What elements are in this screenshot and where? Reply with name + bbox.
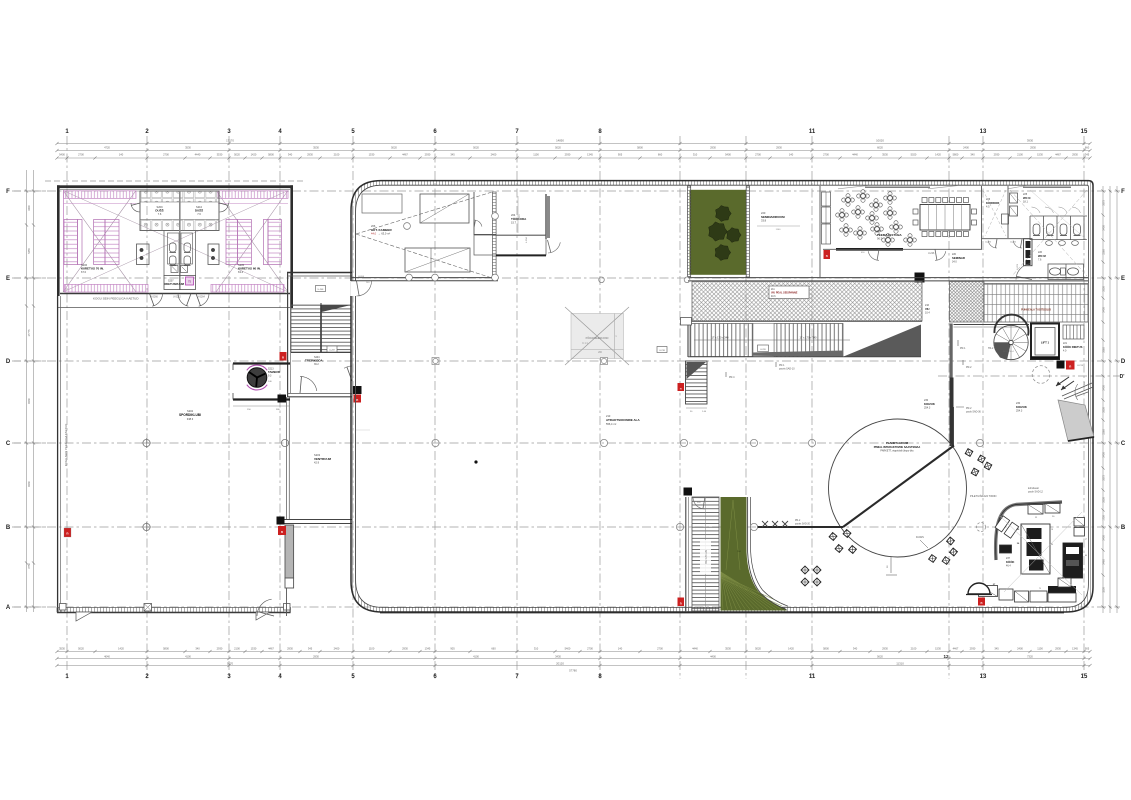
svg-text:5355: 5355 <box>28 248 31 254</box>
svg-text:SEMINARIRUUM: SEMINARIRUUM <box>761 215 785 219</box>
svg-text:2930: 2930 <box>565 153 571 157</box>
svg-text:kohvikuait: kohvikuait <box>1028 487 1039 490</box>
svg-text:n: n <box>281 530 283 534</box>
svg-text:2930: 2930 <box>1055 647 1061 651</box>
svg-text:4440: 4440 <box>692 647 698 651</box>
svg-text:2930: 2930 <box>1072 153 1078 157</box>
svg-text:310: 310 <box>693 153 698 157</box>
svg-text:2000: 2000 <box>1103 286 1106 292</box>
svg-text:1420: 1420 <box>788 647 794 651</box>
svg-text:A: A <box>6 605 11 611</box>
svg-text:4440: 4440 <box>852 153 858 157</box>
svg-text:1530: 1530 <box>369 153 375 157</box>
svg-text:5020: 5020 <box>473 146 479 150</box>
svg-text:PILETIVÄRAVA T300N: PILETIVÄRAVA T300N <box>970 494 997 498</box>
svg-text:SPORDIKLUBI: SPORDIKLUBI <box>179 413 201 417</box>
svg-text:PR-2: PR-2 <box>966 407 972 410</box>
svg-text:PIMIAL INTERAKTIIVNE SAASTEMAA: PIMIAL INTERAKTIIVNE SAASTEMAA <box>874 445 921 449</box>
svg-text:PR-1: PR-1 <box>960 347 966 350</box>
svg-text:15: 15 <box>1081 129 1088 135</box>
svg-text:DUŠŠ: DUŠŠ <box>155 207 163 212</box>
svg-text:3530: 3530 <box>217 153 223 157</box>
svg-text:PARKETT, etapiviisil ükspo-üks: PARKETT, etapiviisil ükspo-üks <box>880 450 914 453</box>
svg-text:34.0: 34.0 <box>952 260 957 263</box>
svg-text:U-226: U-226 <box>928 253 935 255</box>
svg-text:556,4 m²: 556,4 m² <box>606 422 616 426</box>
svg-text:TAMBUR: TAMBUR <box>268 370 280 374</box>
svg-text:20120: 20120 <box>556 661 564 665</box>
svg-text:4467: 4467 <box>953 647 959 651</box>
svg-text:C 1:1: C 1:1 <box>582 343 588 345</box>
svg-text:3400: 3400 <box>28 205 31 211</box>
svg-text:8230: 8230 <box>28 481 31 487</box>
svg-text:U-S212: U-S212 <box>173 296 182 298</box>
svg-text:338.3: 338.3 <box>187 417 194 421</box>
svg-text:n: n <box>680 386 682 390</box>
svg-text:9170: 9170 <box>227 661 234 665</box>
svg-text:7.6: 7.6 <box>158 212 162 216</box>
svg-text:TREPIKODA: TREPIKODA <box>305 359 324 363</box>
svg-text:HKT. KAMBER: HKT. KAMBER <box>371 228 392 232</box>
svg-text:2400: 2400 <box>963 146 969 150</box>
svg-text:340: 340 <box>288 153 293 157</box>
svg-text:1700: 1700 <box>1103 515 1106 521</box>
svg-text:n: n <box>356 398 358 402</box>
svg-text:L-204: L-204 <box>526 237 528 243</box>
svg-text:2930: 2930 <box>1030 146 1036 150</box>
svg-text:6020: 6020 <box>877 146 883 150</box>
svg-text:36.2: 36.2 <box>314 363 319 366</box>
svg-text:1100: 1100 <box>369 647 375 651</box>
svg-text:345: 345 <box>308 647 313 651</box>
svg-text:2100: 2100 <box>334 153 340 157</box>
svg-text:KIIRETUS 60 IN.: KIIRETUS 60 IN. <box>238 267 261 271</box>
svg-text:2100: 2100 <box>911 647 917 651</box>
svg-text:3530: 3530 <box>185 146 191 150</box>
svg-text:140: 140 <box>618 647 623 651</box>
svg-text:905: 905 <box>450 647 455 651</box>
svg-text:KOGU SEIN PEEGLIGA KAETUD: KOGU SEIN PEEGLIGA KAETUD <box>93 297 139 301</box>
svg-text:2930: 2930 <box>287 647 293 651</box>
svg-text:2000: 2000 <box>1103 407 1106 413</box>
svg-text:905: 905 <box>618 153 623 157</box>
svg-text:D: D <box>6 359 11 365</box>
svg-text:340: 340 <box>853 647 858 651</box>
svg-text:n: n <box>680 601 682 605</box>
svg-text:57780: 57780 <box>569 669 577 673</box>
svg-text:n: n <box>282 356 284 360</box>
svg-text:340: 340 <box>970 153 975 157</box>
svg-text:2930: 2930 <box>710 146 716 150</box>
svg-text:SU-1,251.4: SU-1,251.4 <box>1003 351 1014 353</box>
svg-text:→ 63,0 m²: → 63,0 m² <box>378 232 390 236</box>
svg-text:13: 13 <box>980 129 987 135</box>
svg-text:TR-2: TR-2 <box>988 347 994 350</box>
svg-text:PR-4: PR-4 <box>729 376 735 379</box>
svg-text:5020: 5020 <box>78 647 84 651</box>
svg-text:2060: 2060 <box>1103 347 1106 353</box>
svg-text:63.4: 63.4 <box>238 270 244 274</box>
svg-text:KORIDOR: KORIDOR <box>986 201 999 205</box>
svg-text:2100: 2100 <box>1017 153 1023 157</box>
svg-text:1530: 1530 <box>935 647 941 651</box>
svg-text:SEMINAR: SEMINAR <box>952 256 965 260</box>
svg-text:3430: 3430 <box>555 655 561 659</box>
svg-text:310: 310 <box>534 647 539 651</box>
svg-text:4440: 4440 <box>195 153 201 157</box>
svg-text:2700: 2700 <box>657 647 663 651</box>
svg-text:5800: 5800 <box>637 146 643 150</box>
svg-text:2930: 2930 <box>217 647 223 651</box>
svg-text:E: E <box>6 276 10 282</box>
svg-text:2000: 2000 <box>1103 497 1106 503</box>
svg-text:140: 140 <box>789 153 794 157</box>
svg-text:WC M: WC M <box>1038 254 1046 258</box>
svg-text:15: 15 <box>1081 674 1088 680</box>
svg-text:U-218: U-218 <box>659 350 666 352</box>
svg-text:VIU PEAL SEISPANNE: VIU PEAL SEISPANNE <box>771 292 798 295</box>
svg-text:2930: 2930 <box>402 647 408 651</box>
svg-text:poole SAD-12: poole SAD-12 <box>1028 491 1044 494</box>
svg-text:33.8: 33.8 <box>761 219 767 223</box>
svg-text:1100: 1100 <box>533 153 539 157</box>
svg-text:TEEMAJASTUBA: TEEMAJASTUBA <box>877 233 903 237</box>
svg-text:U-209: U-209 <box>329 349 336 351</box>
svg-text:2930: 2930 <box>307 153 313 157</box>
svg-text:2070: 2070 <box>1103 200 1106 206</box>
svg-text:221: 221 <box>1063 342 1068 345</box>
svg-text:2400: 2400 <box>334 647 340 651</box>
svg-text:254.3: 254.3 <box>1016 409 1023 412</box>
svg-text:PLANETAARIUM: PLANETAARIUM <box>886 441 909 445</box>
svg-text:2930: 2930 <box>313 655 319 659</box>
svg-text:140: 140 <box>119 153 124 157</box>
svg-text:2700: 2700 <box>587 647 593 651</box>
svg-text:5020: 5020 <box>755 647 761 651</box>
svg-text:pooris SAD-10: pooris SAD-10 <box>779 368 795 371</box>
svg-text:4.5: 4.5 <box>986 205 990 208</box>
svg-text:PR-1: PR-1 <box>779 364 785 367</box>
svg-text:18.1: 18.1 <box>1023 200 1028 203</box>
svg-text:4040: 4040 <box>104 655 110 659</box>
svg-text:660: 660 <box>491 647 496 651</box>
svg-text:4100: 4100 <box>473 655 479 659</box>
svg-text:LIFT 1: LIFT 1 <box>1041 341 1050 345</box>
svg-text:4467: 4467 <box>1055 153 1061 157</box>
svg-text:2400: 2400 <box>491 153 497 157</box>
svg-text:11310: 11310 <box>896 661 904 665</box>
svg-text:1420: 1420 <box>935 153 941 157</box>
svg-text:5020: 5020 <box>234 153 240 157</box>
svg-text:U-220: U-220 <box>760 349 767 351</box>
svg-text:1345: 1345 <box>425 647 431 651</box>
svg-text:3930: 3930 <box>1027 139 1034 143</box>
svg-text:3750: 3750 <box>28 563 31 569</box>
svg-text:1530: 1530 <box>1037 153 1043 157</box>
svg-text:40.6: 40.6 <box>771 296 776 298</box>
svg-text:10020: 10020 <box>876 139 884 143</box>
svg-text:1345: 1345 <box>587 153 593 157</box>
svg-text:DUŠŠ: DUŠŠ <box>195 207 203 212</box>
svg-text:D': D' <box>1120 374 1125 380</box>
svg-text:2930: 2930 <box>994 153 1000 157</box>
svg-text:2460: 2460 <box>1103 559 1106 565</box>
svg-text:n: n <box>826 254 828 258</box>
svg-text:5800: 5800 <box>163 647 169 651</box>
svg-text:1345: 1345 <box>1072 647 1078 651</box>
svg-text:216: 216 <box>925 304 930 307</box>
svg-text:PÕRVAMEESKOND: PÕRVAMEESKOND <box>586 337 609 340</box>
svg-text:3530: 3530 <box>59 647 65 651</box>
svg-text:KÖÖK RIIETUS: KÖÖK RIIETUS <box>1063 345 1083 349</box>
svg-text:34 x 170 x 29: 34 x 170 x 29 <box>706 549 708 564</box>
svg-text:42.9: 42.9 <box>314 460 320 464</box>
svg-text:4467: 4467 <box>402 153 408 157</box>
svg-text:n: n <box>66 532 68 536</box>
svg-text:2700: 2700 <box>755 153 761 157</box>
svg-text:U-S264: U-S264 <box>197 296 206 298</box>
svg-text:5020: 5020 <box>555 146 561 150</box>
svg-text:1420: 1420 <box>251 153 257 157</box>
svg-text:n: n <box>981 601 983 605</box>
svg-text:WC N: WC N <box>1023 196 1030 200</box>
svg-text:U-208: U-208 <box>318 289 325 291</box>
svg-text:5400: 5400 <box>59 153 65 157</box>
svg-text:pools SAD-36: pools SAD-36 <box>966 411 981 414</box>
svg-text:46.4: 46.4 <box>1006 564 1011 567</box>
svg-text:pooris SAD-20: pooris SAD-20 <box>795 523 811 526</box>
svg-text:KOHVIK: KOHVIK <box>1016 405 1027 409</box>
svg-text:11: 11 <box>809 674 816 680</box>
svg-text:17 x 170 x 340: 17 x 170 x 340 <box>711 336 729 340</box>
svg-text:5400: 5400 <box>565 647 571 651</box>
svg-text:5800: 5800 <box>268 153 274 157</box>
svg-text:C: C <box>1121 441 1126 447</box>
svg-text:3530: 3530 <box>725 647 731 651</box>
svg-text:PR-2: PR-2 <box>966 366 972 369</box>
svg-text:67.0: 67.0 <box>81 270 87 274</box>
svg-text:2070: 2070 <box>1103 475 1106 481</box>
svg-text:R-002S: R-002S <box>916 537 924 539</box>
svg-text:17 x 170 x 340: 17 x 170 x 340 <box>799 336 817 340</box>
svg-text:13: 13 <box>980 674 987 680</box>
svg-text:B: B <box>6 525 11 531</box>
svg-text:2700: 2700 <box>78 153 84 157</box>
svg-text:2400: 2400 <box>1103 307 1106 313</box>
svg-text:RIIETUSRUUM: RIIETUSRUUM <box>165 282 185 286</box>
svg-text:254.3: 254.3 <box>924 406 931 409</box>
svg-text:17775: 17775 <box>28 329 31 337</box>
svg-text:KIIRETUS 70 IN.: KIIRETUS 70 IN. <box>81 267 104 271</box>
svg-text:2400: 2400 <box>1017 647 1023 651</box>
svg-text:5020: 5020 <box>391 146 397 150</box>
svg-text:2930: 2930 <box>425 153 431 157</box>
svg-text:2930: 2930 <box>776 146 782 150</box>
svg-text:1140: 1140 <box>776 229 781 231</box>
svg-text:C: C <box>6 441 11 447</box>
svg-text:5400: 5400 <box>725 153 731 157</box>
svg-text:KOGU SEIN PEEGLIGA KAETUD: KOGU SEIN PEEGLIGA KAETUD <box>64 424 68 466</box>
svg-text:VIU: VIU <box>925 307 930 311</box>
svg-text:660: 660 <box>1085 146 1090 150</box>
svg-text:5800: 5800 <box>823 647 829 651</box>
svg-text:5020: 5020 <box>911 153 917 157</box>
svg-text:2400: 2400 <box>1103 535 1106 541</box>
svg-text:U-S266: U-S266 <box>150 296 159 298</box>
svg-text:F: F <box>1121 189 1125 195</box>
svg-text:2700: 2700 <box>163 153 169 157</box>
svg-text:U-219: U-219 <box>1077 365 1084 367</box>
svg-text:2930: 2930 <box>882 647 888 651</box>
svg-text:VENTRUUM: VENTRUUM <box>314 457 332 461</box>
svg-text:2400: 2400 <box>1103 225 1106 231</box>
svg-text:4100: 4100 <box>185 655 191 659</box>
svg-text:15.7: 15.7 <box>511 221 517 225</box>
svg-text:5800: 5800 <box>953 153 959 157</box>
svg-text:660: 660 <box>658 153 663 157</box>
svg-text:4467: 4467 <box>268 647 274 651</box>
svg-text:PUHKEALA TUGITOOLID: PUHKEALA TUGITOOLID <box>1021 309 1051 312</box>
svg-text:B: B <box>1121 525 1126 531</box>
svg-text:n: n <box>1069 365 1071 369</box>
svg-text:7320: 7320 <box>1027 655 1033 659</box>
svg-text:PR-2: PR-2 <box>795 520 801 522</box>
svg-text:E: E <box>1121 276 1125 282</box>
svg-text:75: 75 <box>188 280 192 284</box>
svg-text:2400: 2400 <box>1103 452 1106 458</box>
svg-text:17170: 17170 <box>226 139 234 143</box>
svg-text:4720: 4720 <box>104 146 110 150</box>
svg-text:14850: 14850 <box>556 139 564 143</box>
svg-text:ATRAKTSIOONIDE ALA: ATRAKTSIOONIDE ALA <box>606 418 640 422</box>
svg-text:3530: 3530 <box>882 153 888 157</box>
svg-text:1420: 1420 <box>118 647 124 651</box>
svg-text:905: 905 <box>1085 647 1090 651</box>
svg-text:2700: 2700 <box>823 153 829 157</box>
svg-text:2930: 2930 <box>970 647 976 651</box>
svg-text:2260: 2260 <box>1103 249 1106 255</box>
svg-text:5620: 5620 <box>877 655 883 659</box>
svg-text:2400: 2400 <box>1103 385 1106 391</box>
svg-text:3200: 3200 <box>1103 587 1106 593</box>
svg-text:10.4: 10.4 <box>925 311 930 314</box>
svg-text:KÖÖK: KÖÖK <box>1006 559 1014 564</box>
svg-text:8230: 8230 <box>28 398 31 404</box>
svg-text:96.3: 96.3 <box>877 237 883 241</box>
svg-text:4400: 4400 <box>710 655 716 659</box>
svg-text:1530: 1530 <box>251 647 257 651</box>
svg-text:340: 340 <box>195 647 200 651</box>
svg-text:1100: 1100 <box>1037 647 1043 651</box>
svg-text:F: F <box>6 189 10 195</box>
svg-text:D: D <box>1121 359 1126 365</box>
svg-text:3530: 3530 <box>313 146 319 150</box>
svg-text:345: 345 <box>450 153 455 157</box>
svg-text:345: 345 <box>994 647 999 651</box>
svg-text:345: 345 <box>1085 153 1090 157</box>
svg-text:7.6: 7.6 <box>197 212 201 216</box>
svg-text:KOHVIK: KOHVIK <box>924 402 935 406</box>
svg-text:2100: 2100 <box>234 647 240 651</box>
svg-text:11: 11 <box>809 129 816 135</box>
svg-text:44,0: 44,0 <box>371 232 377 236</box>
svg-text:2260: 2260 <box>1103 429 1106 435</box>
